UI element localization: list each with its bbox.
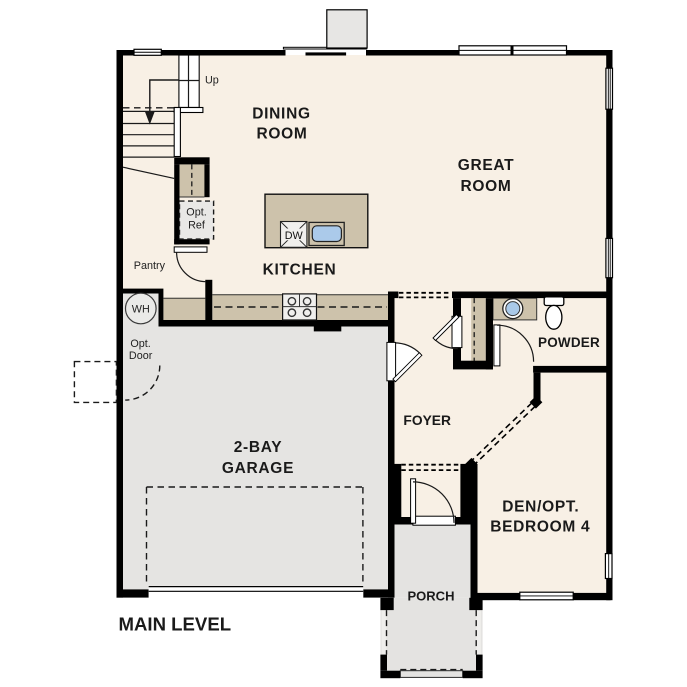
svg-text:GARAGE: GARAGE [222, 460, 294, 477]
svg-text:PORCH: PORCH [408, 589, 455, 604]
svg-text:Up: Up [205, 75, 219, 87]
svg-text:DINING: DINING [252, 106, 310, 123]
svg-text:Opt.: Opt. [186, 207, 206, 219]
svg-text:WH: WH [132, 304, 150, 316]
svg-text:ROOM: ROOM [460, 178, 511, 195]
svg-text:POWDER: POWDER [538, 335, 600, 350]
svg-text:FOYER: FOYER [403, 413, 451, 428]
svg-text:GREAT: GREAT [458, 157, 515, 174]
svg-text:Pantry: Pantry [134, 260, 166, 272]
svg-text:DEN/OPT.: DEN/OPT. [502, 498, 579, 515]
svg-text:2-BAY: 2-BAY [234, 439, 283, 456]
svg-text:Opt.: Opt. [130, 338, 150, 350]
svg-text:ROOM: ROOM [256, 126, 307, 143]
svg-text:KITCHEN: KITCHEN [263, 262, 337, 279]
svg-text:Ref: Ref [188, 220, 206, 232]
svg-text:DW: DW [285, 230, 304, 242]
svg-text:BEDROOM 4: BEDROOM 4 [490, 519, 590, 536]
svg-text:MAIN LEVEL: MAIN LEVEL [119, 613, 232, 634]
svg-text:Door: Door [129, 350, 153, 362]
